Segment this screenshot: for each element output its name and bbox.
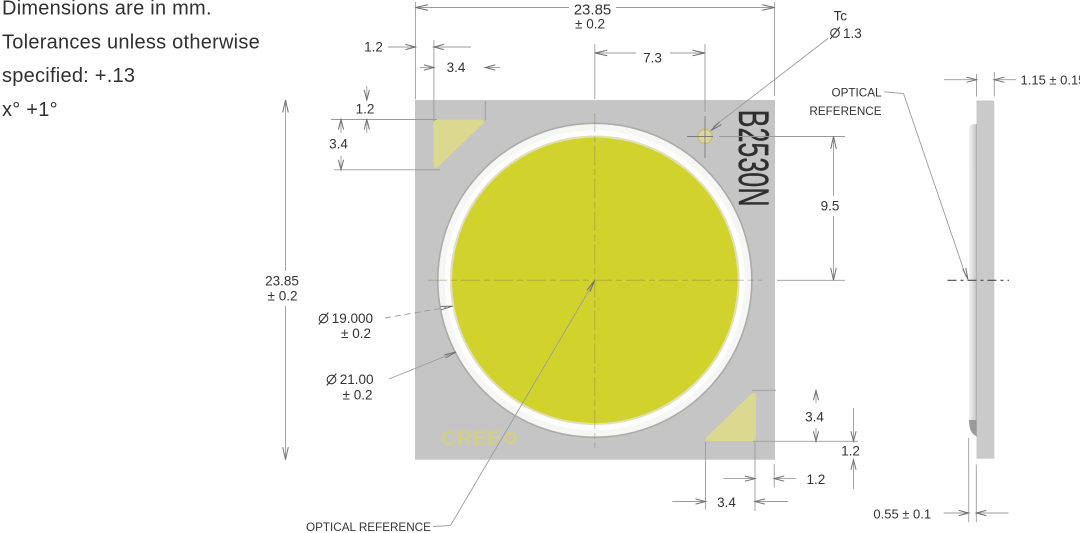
svg-text:x° +1°: x° +1° <box>2 99 58 121</box>
svg-text:Tolerances unless otherwise: Tolerances unless otherwise <box>2 31 260 53</box>
svg-text:1.2: 1.2 <box>807 472 826 487</box>
svg-text:OPTICAL REFERENCE: OPTICAL REFERENCE <box>306 521 431 533</box>
svg-text:specified: +.13: specified: +.13 <box>2 65 135 87</box>
svg-text:0.55 ± 0.1: 0.55 ± 0.1 <box>873 507 931 522</box>
svg-text:9.5: 9.5 <box>821 199 840 214</box>
svg-text:23.85: 23.85 <box>265 274 299 289</box>
svg-text:1.3: 1.3 <box>843 26 862 41</box>
svg-text:Tc: Tc <box>834 9 848 24</box>
svg-text:19.000: 19.000 <box>332 311 373 326</box>
svg-text:1.2: 1.2 <box>841 444 860 459</box>
svg-text:3.4: 3.4 <box>805 410 824 425</box>
svg-text:± 0.2: ± 0.2 <box>268 289 298 304</box>
svg-text:Dimensions are in mm.: Dimensions are in mm. <box>2 0 212 20</box>
svg-text:± 0.2: ± 0.2 <box>341 326 371 341</box>
svg-text:B2530N: B2530N <box>729 110 777 207</box>
svg-text:REFERENCE: REFERENCE <box>809 105 881 118</box>
svg-text:± 0.2: ± 0.2 <box>575 17 605 32</box>
svg-text:CREE: CREE <box>441 427 501 450</box>
svg-text:1.2: 1.2 <box>356 102 375 117</box>
svg-text:OPTICAL: OPTICAL <box>831 87 882 100</box>
svg-text:1.2: 1.2 <box>364 39 383 54</box>
svg-text:± 0.2: ± 0.2 <box>343 388 373 403</box>
svg-text:3.4: 3.4 <box>447 60 466 75</box>
svg-text:3.4: 3.4 <box>717 495 736 510</box>
svg-text:3.4: 3.4 <box>329 137 348 152</box>
svg-text:21.00: 21.00 <box>340 372 374 387</box>
svg-text:7.3: 7.3 <box>643 51 662 66</box>
svg-text:1.15 ± 0.15: 1.15 ± 0.15 <box>1021 73 1080 88</box>
